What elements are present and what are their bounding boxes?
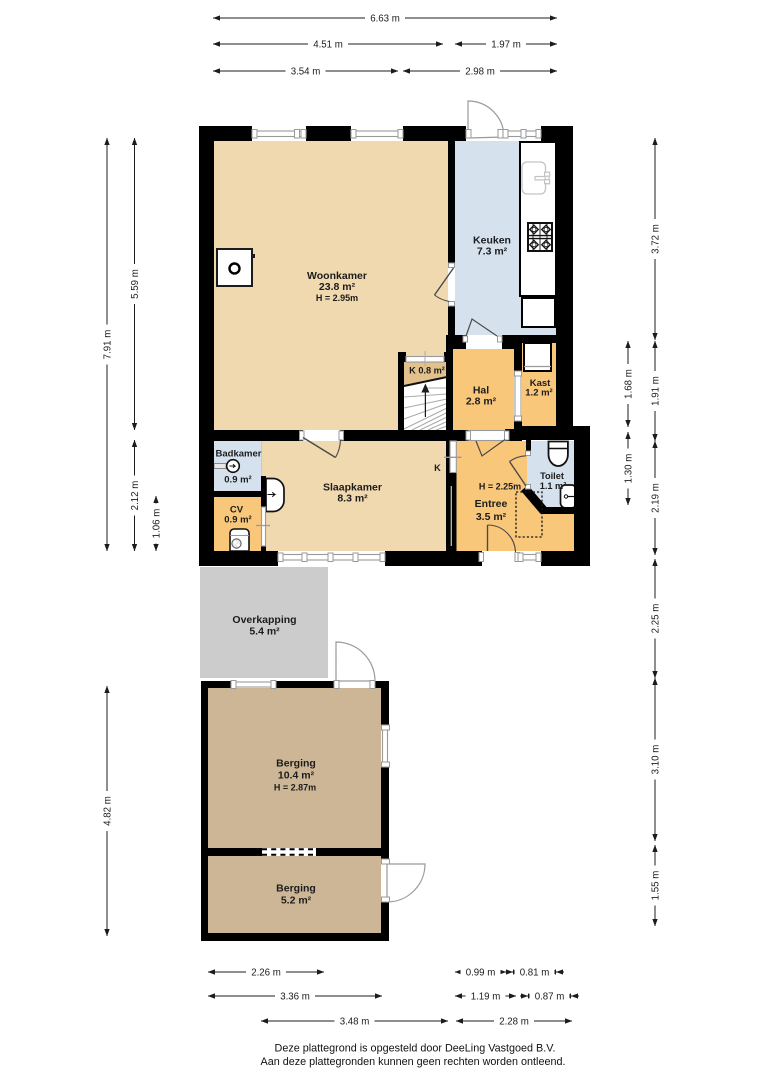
svg-text:8.3 m²: 8.3 m² — [337, 493, 368, 505]
svg-text:2.98 m: 2.98 m — [465, 67, 495, 78]
svg-text:0.9 m²: 0.9 m² — [224, 515, 251, 526]
svg-text:2.19 m: 2.19 m — [651, 483, 662, 513]
svg-text:H = 2.87m: H = 2.87m — [274, 783, 316, 793]
svg-text:1.91 m: 1.91 m — [651, 376, 662, 406]
svg-text:Berging: Berging — [276, 883, 316, 895]
svg-text:H = 2.95m: H = 2.95m — [316, 293, 358, 303]
svg-text:2.25 m: 2.25 m — [651, 604, 662, 634]
svg-text:1.68 m: 1.68 m — [624, 369, 635, 399]
svg-text:1.1 m²: 1.1 m² — [540, 481, 567, 491]
svg-text:Deze plattegrond is opgesteld: Deze plattegrond is opgesteld door DeeLi… — [275, 1043, 556, 1055]
svg-text:Badkamer: Badkamer — [216, 449, 262, 460]
svg-text:2.26 m: 2.26 m — [251, 968, 281, 979]
svg-text:3.10 m: 3.10 m — [651, 745, 662, 775]
svg-text:H = 2.25m: H = 2.25m — [479, 482, 521, 492]
svg-text:2.8 m²: 2.8 m² — [466, 396, 497, 408]
svg-text:1.2 m²: 1.2 m² — [525, 388, 552, 399]
svg-text:4.51 m: 4.51 m — [313, 40, 343, 51]
svg-text:1.30 m: 1.30 m — [624, 454, 635, 484]
svg-text:3.36 m: 3.36 m — [280, 992, 310, 1003]
svg-text:5.2 m²: 5.2 m² — [281, 895, 312, 907]
svg-text:2.12 m: 2.12 m — [130, 481, 141, 511]
svg-text:1.97 m: 1.97 m — [491, 40, 521, 51]
svg-text:7.91 m: 7.91 m — [103, 330, 114, 360]
svg-text:3.48 m: 3.48 m — [340, 1017, 370, 1028]
svg-text:K: K — [434, 463, 441, 473]
svg-text:Entree: Entree — [475, 498, 508, 510]
svg-text:1.55 m: 1.55 m — [651, 871, 662, 901]
svg-text:0.81 m: 0.81 m — [520, 968, 550, 979]
svg-text:1.19 m: 1.19 m — [471, 992, 501, 1003]
svg-text:3.5 m²: 3.5 m² — [476, 511, 507, 523]
svg-text:Aan deze plattegronden kunnen: Aan deze plattegronden kunnen geen recht… — [261, 1056, 566, 1068]
svg-text:0.9 m²: 0.9 m² — [224, 475, 251, 486]
svg-text:0.87 m: 0.87 m — [535, 992, 565, 1003]
svg-text:3.72 m: 3.72 m — [651, 224, 662, 254]
svg-text:5.59 m: 5.59 m — [130, 269, 141, 299]
svg-text:6.63 m: 6.63 m — [370, 14, 400, 25]
svg-text:1.06 m: 1.06 m — [152, 509, 163, 539]
svg-text:Berging: Berging — [276, 758, 316, 770]
svg-text:4.82 m: 4.82 m — [103, 796, 114, 826]
svg-text:0.99 m: 0.99 m — [466, 968, 496, 979]
svg-text:2.28 m: 2.28 m — [499, 1017, 529, 1028]
svg-text:5.4 m²: 5.4 m² — [249, 626, 280, 638]
svg-text:Overkapping: Overkapping — [232, 614, 296, 626]
svg-text:3.54 m: 3.54 m — [291, 67, 321, 78]
svg-text:10.4 m²: 10.4 m² — [278, 770, 315, 782]
svg-text:23.8 m²: 23.8 m² — [319, 281, 356, 293]
svg-text:Toilet: Toilet — [540, 471, 564, 481]
svg-text:K 0.8 m²: K 0.8 m² — [409, 366, 445, 376]
svg-text:7.3 m²: 7.3 m² — [477, 246, 508, 258]
